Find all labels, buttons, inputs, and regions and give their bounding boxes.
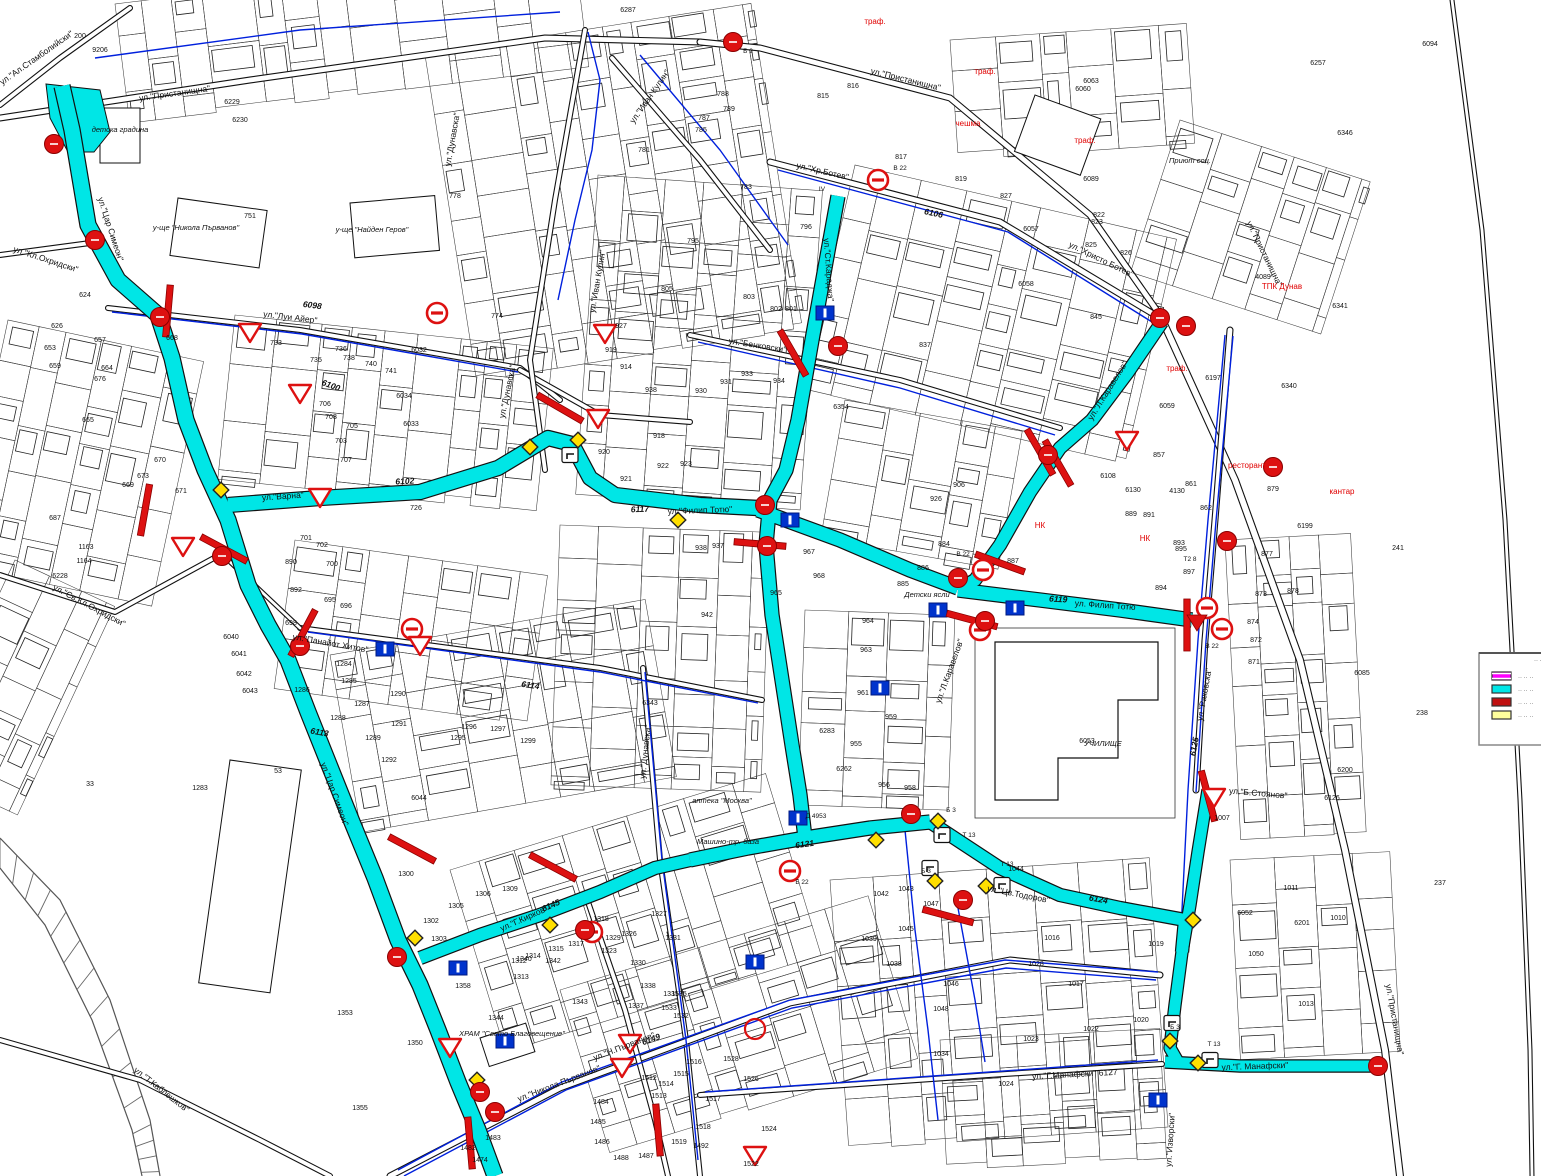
parcel-number: 6228 [52,573,68,580]
parcel-line [0,650,8,701]
hatch-tick [90,996,108,1016]
building-footprint [649,536,674,554]
building-footprint [9,327,34,348]
parcel-line [552,330,588,368]
building-footprint [750,198,770,221]
parcel-number: 659 [49,363,61,370]
hydrant-dot-marker [86,231,105,250]
parcel-line [773,194,791,257]
no-entry-bar [872,178,884,181]
building-footprint [503,334,547,359]
parcel-number: 1043 [898,886,914,893]
parcel-number: 6340 [1281,383,1297,390]
parcel-number: 1019 [1148,941,1164,948]
parcel-line [361,551,409,620]
building-footprint [24,546,54,570]
parcel-block [0,560,115,815]
building-footprint [129,351,158,373]
building-footprint [152,62,175,85]
parcel-line [924,736,951,787]
no-entry-bar [977,568,989,571]
parcel-number: 965 [770,590,782,597]
no-entry-sign [973,560,993,580]
hatch-tick [141,1172,159,1173]
parcel-line [1291,568,1322,603]
parcel-number: 1038 [886,961,902,968]
blue-node-glyph [384,645,387,654]
building-footprint [723,533,744,562]
parcel-number: 626 [51,323,63,330]
building-footprint [1102,1116,1131,1136]
building-footprint [737,130,763,157]
building-footprint [677,733,709,751]
red-facility-label: чешма [956,119,982,128]
legend-label: ·· ·· ·· [1518,701,1533,707]
parcel-line [1328,718,1363,774]
parcel-line [563,605,621,660]
parcel-number: 1331 [665,935,681,942]
parcel-line [1133,1078,1166,1144]
blue-node-marker [449,961,467,975]
building-footprint [1297,576,1314,594]
parcel-number: 1287 [354,701,370,708]
parcel-line [0,676,35,720]
annotation-label: Б 3 [921,868,931,875]
parcel-line [1210,134,1261,183]
parcel-number: 6262 [836,766,852,773]
building-footprint [221,476,255,487]
parcel-number: 956 [878,782,890,789]
hatch-tick [51,912,66,936]
building-footprint [890,620,924,651]
parcel-line [450,409,480,450]
parcel-number: 895 [1175,546,1187,553]
parcel-number: 872 [1250,637,1262,644]
parcel-line [612,311,656,354]
parcel-number: 1355 [352,1105,368,1112]
parcel-number: 1486 [594,1139,610,1146]
building-footprint [118,398,146,427]
parcel-line [1050,1108,1096,1135]
legend-label: ·· ·· ·· [1518,688,1533,694]
facility-label: детска градина [92,125,149,134]
annotation-label: IV [819,186,826,193]
parcel-line [420,761,478,820]
hydrant-dot-marker [1151,309,1170,328]
parcel-number: 741 [385,368,397,375]
parcel-number: 687 [49,515,61,522]
parcel-number: 241 [1392,545,1404,552]
parcel-line [1284,1046,1324,1057]
parcel-line [342,368,380,425]
blue-node-glyph [879,684,882,693]
parcel-number: 926 [930,496,942,503]
parcel-line [888,1096,925,1146]
street-code: 6121 [795,838,815,851]
red-facility-label: ТПК Дунав [1262,282,1302,291]
parcel-number: 1046 [943,981,959,988]
parcel-number: 4089 [1255,274,1271,281]
parcel-line [950,37,998,71]
blue-node-marker [746,955,764,969]
annotation-label: Б 3 [946,807,956,814]
building-footprint [441,568,473,593]
parcel-line [1279,946,1321,989]
parcel-line [438,0,495,15]
hydrant-dot-glyph [156,316,164,318]
building-footprint [66,339,96,364]
parcel-number: 923 [680,461,692,468]
parcel-line [422,677,462,715]
parcel-line [845,1096,891,1145]
parcel-line [842,758,883,798]
parcel-number: 778 [449,193,461,200]
parcel-number: 878 [1287,588,1299,595]
building-footprint [840,946,874,964]
parcel-number: 6033 [403,421,419,428]
parcel-number: 783 [740,184,752,191]
parcel-number: 6200 [1337,767,1353,774]
facility-label: Машино-тр. база [697,837,759,846]
building-footprint [344,429,369,460]
parcel-line [911,939,947,998]
parcel-number: 670 [154,457,166,464]
blue-node-marker [871,681,889,695]
building-footprint [1265,699,1288,716]
parcel-number: 918 [653,433,665,440]
building-footprint [660,300,688,320]
parcel-line [208,40,266,107]
street-code: 6100 [320,377,341,393]
parcel-number: 816 [847,83,859,90]
red-facility-label: НК [1035,521,1046,530]
red-facility-label: траф. [1166,364,1187,373]
parcel-line [336,422,375,485]
parcel-line [1261,662,1297,695]
building-footprint [1258,152,1286,174]
building-footprint [683,82,717,99]
building-footprint [882,456,910,485]
parcel-number: 1353 [337,1010,353,1017]
building-footprint [588,371,604,391]
parcel-number: 1007 [1214,815,1230,822]
hydrant-dot-glyph [1182,325,1190,327]
parcel-line [412,334,461,397]
hydrant-dot-glyph [218,555,226,557]
parcel-line [333,580,365,621]
parcel-line [1304,824,1334,836]
building-footprint [672,13,706,37]
hydrant-dot-glyph [761,504,769,506]
parcel-line [46,683,77,736]
parcel-line [843,278,896,350]
building-footprint [264,440,298,469]
water-pipe-line [698,342,1055,435]
parcel-number: 781 [638,147,650,154]
hatch-tick [138,1156,156,1160]
parcel-number: 624 [79,292,91,299]
parcel-line [389,809,429,827]
building-footprint [845,406,886,428]
parcel-line [801,691,846,724]
parcel-line [0,777,20,811]
building-footprint [759,83,768,105]
building-footprint [751,721,758,741]
parcel-number: 1329 [605,935,621,942]
building-footprint [893,292,934,325]
building-footprint [480,428,499,449]
parcel-line [451,217,486,256]
parcel-line [663,218,711,290]
parcel-number: 1524 [761,1126,777,1133]
parcel-line [37,629,89,699]
parcel-line [993,971,1043,1018]
parcel-line [640,576,679,622]
parcel-line [469,755,526,812]
parcel-line [1163,88,1194,137]
parcel-number: 1532 [673,1013,689,1020]
parcel-line [497,23,537,77]
parcel-line [602,1120,637,1153]
parcel-number: 1290 [390,691,406,698]
parcel-line [949,461,988,500]
parcel-number: 1482 [460,1145,476,1152]
parcel-line [1066,29,1113,68]
building-footprint [627,214,658,242]
hydrant-dot-marker [213,547,232,566]
parcel-number: 1042 [873,891,889,898]
parcel-line [882,286,942,361]
give-way-sign [289,385,311,403]
parcel-number: 1285 [341,678,357,685]
parcel-line [477,188,535,237]
parcel-number: 921 [620,476,632,483]
parcel-line [725,77,762,130]
hydrant-dot-glyph [296,645,304,647]
parcel-number: 827 [1000,193,1012,200]
parcel-line [457,251,494,304]
parcel-number: 1023 [1023,1036,1039,1043]
parcel-number: 937 [712,543,724,550]
parcel-block [798,610,955,810]
parcel-number: 1305 [448,903,464,910]
parcel-line [0,320,39,367]
street-code: 6119 [1049,593,1068,604]
parcel-number: 1013 [1298,1001,1314,1008]
parcel-number: 733 [270,340,282,347]
parcel-line [171,0,206,32]
parcel-line [548,717,589,762]
parcel-number: 887 [1007,558,1019,565]
parcel-number: 736 [335,346,347,353]
parcel-line [338,547,370,584]
parcel-line [9,775,34,815]
hydrant-box [562,448,578,463]
parcel-line [1200,169,1250,214]
parcel-line [754,78,771,133]
building-footprint [563,608,595,624]
red-facility-label: НК [1140,534,1151,543]
street-name: ул."Дунавска" [442,112,461,167]
parcel-number: 9206 [92,47,108,54]
building-footprint [0,714,15,740]
hydrant-dot-marker [829,337,848,356]
hatch-tick [38,890,51,916]
parcel-number: 1315 [548,946,564,953]
parcel-number: 862 [1200,505,1212,512]
parcel-number: 1488 [613,1155,629,1162]
parcel-line [746,672,765,717]
building-footprint [888,726,923,743]
parcel-line [824,479,876,527]
parcel-line [572,652,632,720]
parcel-line [454,42,516,115]
parcel-number: 1535 [671,991,687,998]
parcel-number: 6094 [1422,41,1438,48]
parcel-number: 938 [645,387,657,394]
parcel-line [1276,887,1319,948]
parcel-line [653,327,694,366]
parcel-number: 1517 [705,1096,721,1103]
parcel-line [285,16,324,63]
annotation-label: Д 4953 [806,813,827,820]
parcel-number: 735 [310,357,322,364]
parcel-line [1289,535,1320,570]
legend-label: ·· ·· ·· [1518,675,1533,681]
parcel-number: 698 [285,620,297,627]
parcel-number: 959 [885,714,897,721]
building-footprint [680,47,715,70]
parcel-line [404,556,443,597]
parcel-line [732,774,774,813]
hatch-tick [64,940,80,963]
parcel-line [842,1043,889,1100]
embankment-line [0,838,160,1176]
hatch-tick [124,1096,142,1108]
parcel-line [315,0,350,29]
parcel-line [1233,685,1265,746]
building-footprint [561,635,592,655]
parcel-number: 707 [340,457,352,464]
parcel-number: 958 [904,785,916,792]
parcel-number: 1289 [365,735,381,742]
parcel-number: 892 [290,587,302,594]
building-footprint [598,765,643,782]
parcel-number: 1483 [485,1135,501,1142]
building-footprint [950,501,972,527]
parcel-number: 1330 [630,960,646,967]
parcel-line [858,230,908,287]
parcel-number: 6257 [1310,60,1326,67]
parcel-number: 968 [813,573,825,580]
parcel-number: 894 [1155,585,1167,592]
building-footprint [755,634,762,650]
hydrant-dot-marker [902,805,921,824]
building-footprint [680,579,707,599]
building-footprint [8,740,32,768]
no-entry-sign [780,861,800,881]
hydrant-dot-marker [1264,458,1283,477]
parcel-number: 1340 [516,956,532,963]
parcel-line [1239,1026,1285,1060]
parcel-line [1060,308,1116,356]
parcel-line [713,680,747,729]
parcel-line [450,55,504,84]
parcel-line [562,826,605,877]
parcel-number: 787 [698,115,710,122]
blue-node-glyph [789,516,792,525]
parcel-number: 6130 [1125,487,1141,494]
red-facility-label: траф. [974,67,995,76]
parcel-number: 1050 [1248,951,1264,958]
road-closure-bar [1184,599,1190,651]
blue-node-glyph [824,309,827,318]
parcel-number: 1164 [76,558,91,565]
building-footprint [961,1124,998,1140]
parcel-line [1148,179,1203,232]
parcel-number: 891 [1143,512,1155,519]
parcel-number: 1288 [330,715,346,722]
parcel-line [678,529,719,578]
parcel-number: 817 [895,154,907,161]
hydrant-dot-glyph [393,956,401,958]
parcel-line [432,608,472,646]
no-entry-bar [784,869,796,872]
parcel-number: 1327 [651,911,667,918]
building-footprint [735,1032,775,1059]
parcel-number: 879 [1267,486,1279,493]
hatch-tick [13,855,17,884]
parcel-line [677,577,718,627]
building-footprint [212,45,255,71]
building-footprint [345,552,362,572]
parcel-number: 6197 [1205,375,1221,382]
hydrant-dot-marker [1177,317,1196,336]
parcel-number: 934 [773,378,785,385]
parcel-number: 665 [82,417,94,424]
parcel-number: 1022 [1083,1026,1099,1033]
parcel-number: 6041 [231,651,247,658]
parcel-line [987,427,1022,479]
building-footprint [20,779,32,796]
parcel-number: 6287 [620,7,636,14]
hydrant-dot-glyph [91,239,99,241]
building-footprint [891,684,919,699]
parcel-line [671,756,712,790]
building-footprint [1021,295,1062,326]
road-surface [1452,0,1532,1176]
parcel-line [1277,298,1320,332]
parcel-number: 826 [1120,250,1132,257]
parcel-number: 1045 [898,926,914,933]
parcel-number: 922 [657,463,669,470]
parcel-line [0,734,40,789]
parcel-line [9,425,45,476]
parcel-line [620,137,657,195]
map-stage: 2009206622962307516287624626659653657676… [0,0,1541,1176]
building-footprint [485,854,520,887]
parcel-number: 668 [166,335,178,342]
hydrant-dot-glyph [491,1111,499,1113]
parcel-number: 1302 [423,918,439,925]
building-footprint [963,425,989,448]
building-footprint [992,1138,1023,1157]
hydrant-dot-glyph [763,545,771,547]
parcel-line [252,0,287,46]
hatch-tick [77,968,94,990]
parcel-number: 1358 [455,983,471,990]
parcel-number: 877 [1261,551,1273,558]
